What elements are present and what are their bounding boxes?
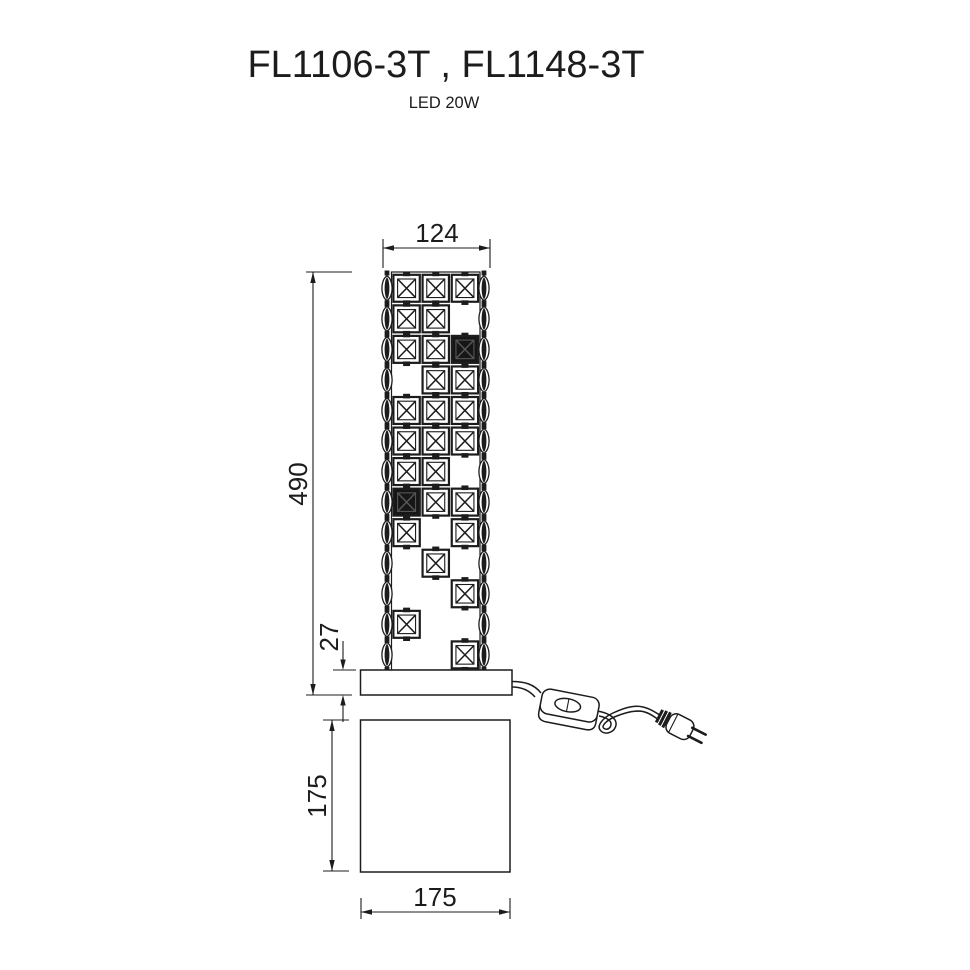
- arrowhead-right: [499, 909, 510, 914]
- crystal-grid: [393, 272, 478, 672]
- bead: [382, 520, 392, 551]
- arrowhead-left: [361, 909, 372, 914]
- bead: [382, 368, 392, 399]
- crystal-clear: [393, 394, 419, 427]
- bead: [382, 490, 392, 521]
- lamp-base: [361, 720, 511, 872]
- arrowhead-top: [329, 720, 334, 731]
- bead: [382, 459, 392, 490]
- bead: [382, 276, 392, 307]
- crystal-clear: [393, 608, 419, 641]
- arrowhead-left: [383, 245, 394, 250]
- crystal-clear: [423, 455, 449, 488]
- base-plate: [361, 670, 513, 695]
- bead: [382, 612, 392, 643]
- technical-drawing-page: FL1106-3T , FL1148-3T LED 20W 124 490 27…: [0, 0, 970, 970]
- crystal-clear: [393, 302, 419, 335]
- wattage-label: LED 20W: [409, 94, 480, 112]
- arrowhead-up: [340, 695, 345, 706]
- crystal-clear: [423, 424, 449, 457]
- crystal-clear: [423, 394, 449, 427]
- dimension-label: 175: [302, 774, 332, 817]
- dimension-label: 27: [314, 623, 344, 652]
- bead: [382, 643, 392, 671]
- dimension-shade-width: 124: [383, 218, 490, 268]
- crystal-clear: [452, 363, 478, 396]
- bead: [382, 551, 392, 582]
- arrowhead-down: [340, 660, 345, 671]
- crystal-clear: [452, 485, 478, 518]
- arrowhead-bottom: [310, 684, 315, 695]
- crystal-clear: [423, 272, 449, 305]
- bead: [382, 429, 392, 460]
- power-plug: [653, 706, 708, 748]
- arrowhead-right: [479, 245, 490, 250]
- dimension-base-height: 175: [302, 720, 349, 871]
- crystal-clear: [423, 333, 449, 366]
- crystal-clear: [393, 516, 419, 549]
- crystal-clear: [452, 394, 478, 427]
- crystal-dark: [393, 485, 419, 518]
- arrowhead-bottom: [329, 860, 334, 871]
- crystal-clear: [423, 485, 449, 518]
- crystal-clear: [452, 424, 478, 457]
- crystal-clear: [423, 547, 449, 580]
- bead: [382, 337, 392, 368]
- crystal-clear: [423, 363, 449, 396]
- crystal-clear: [452, 516, 478, 549]
- dimension-base-width: 175: [361, 882, 510, 919]
- bead: [382, 307, 392, 338]
- crystal-clear: [452, 272, 478, 305]
- inline-switch: [537, 688, 600, 731]
- lamp-dimension-drawing: FL1106-3T , FL1148-3T LED 20W 124 490 27…: [0, 0, 970, 970]
- crystal-clear: [393, 424, 419, 457]
- bead: [382, 398, 392, 429]
- page-title: FL1106-3T , FL1148-3T: [247, 44, 644, 86]
- cord-segment: [512, 687, 535, 697]
- crystal-dark: [452, 333, 478, 366]
- crystal-clear: [393, 333, 419, 366]
- crystal-clear: [393, 455, 419, 488]
- dimension-label: 124: [415, 218, 458, 248]
- crystal-clear: [452, 638, 478, 671]
- dimension-label: 175: [413, 882, 456, 912]
- bead-chain-left: [382, 271, 392, 671]
- arrowhead-top: [310, 272, 315, 283]
- dimension-plate-height: 27: [314, 623, 356, 722]
- dimension-label: 490: [283, 462, 313, 505]
- crystal-clear: [423, 302, 449, 335]
- bead: [382, 581, 392, 612]
- crystal-clear: [393, 272, 419, 305]
- crystal-clear: [452, 577, 478, 610]
